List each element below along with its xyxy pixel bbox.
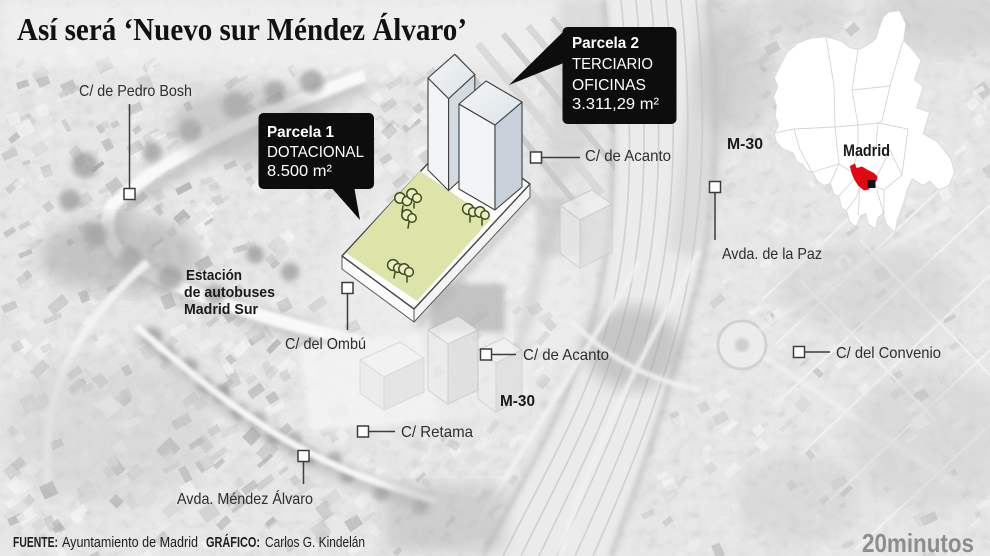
svg-text:Madrid Sur: Madrid Sur bbox=[184, 301, 258, 318]
svg-text:20minutos: 20minutos bbox=[862, 528, 974, 556]
svg-text:OFICINAS: OFICINAS bbox=[572, 77, 646, 94]
svg-text:Estación: Estación bbox=[186, 267, 242, 284]
svg-text:Carlos G. Kindelán: Carlos G. Kindelán bbox=[265, 534, 365, 551]
svg-text:C/ de Pedro Bosh: C/ de Pedro Bosh bbox=[79, 83, 192, 100]
svg-text:Avda. Méndez Álvaro: Avda. Méndez Álvaro bbox=[177, 489, 313, 508]
svg-text:TERCIARIO: TERCIARIO bbox=[572, 56, 653, 73]
svg-text:Así será ‘Nuevo sur Méndez Álv: Así será ‘Nuevo sur Méndez Álvaro’ bbox=[17, 11, 467, 47]
svg-text:Parcela 2: Parcela 2 bbox=[572, 35, 639, 52]
svg-text:de autobuses: de autobuses bbox=[184, 284, 275, 301]
svg-text:GRÁFICO:: GRÁFICO: bbox=[206, 534, 260, 551]
svg-text:M-30: M-30 bbox=[727, 136, 763, 153]
svg-text:C/ de Acanto: C/ de Acanto bbox=[585, 148, 671, 165]
svg-text:C/ del Ombú: C/ del Ombú bbox=[285, 336, 366, 353]
svg-text:Avda. de la Paz: Avda. de la Paz bbox=[722, 246, 822, 263]
svg-text:DOTACIONAL: DOTACIONAL bbox=[267, 144, 364, 161]
svg-text:C/ de Acanto: C/ de Acanto bbox=[523, 347, 609, 364]
svg-text:Parcela 1: Parcela 1 bbox=[267, 124, 334, 141]
svg-text:M-30: M-30 bbox=[500, 393, 535, 410]
svg-text:3.311,29 m²: 3.311,29 m² bbox=[572, 96, 660, 113]
svg-text:Madrid: Madrid bbox=[843, 141, 890, 160]
svg-text:FUENTE:: FUENTE: bbox=[13, 534, 58, 551]
svg-text:8.500 m²: 8.500 m² bbox=[267, 163, 333, 180]
svg-text:Ayuntamiento de Madrid: Ayuntamiento de Madrid bbox=[62, 534, 198, 551]
svg-text:C/ del Convenio: C/ del Convenio bbox=[836, 345, 941, 362]
svg-text:C/ Retama: C/ Retama bbox=[401, 424, 473, 441]
